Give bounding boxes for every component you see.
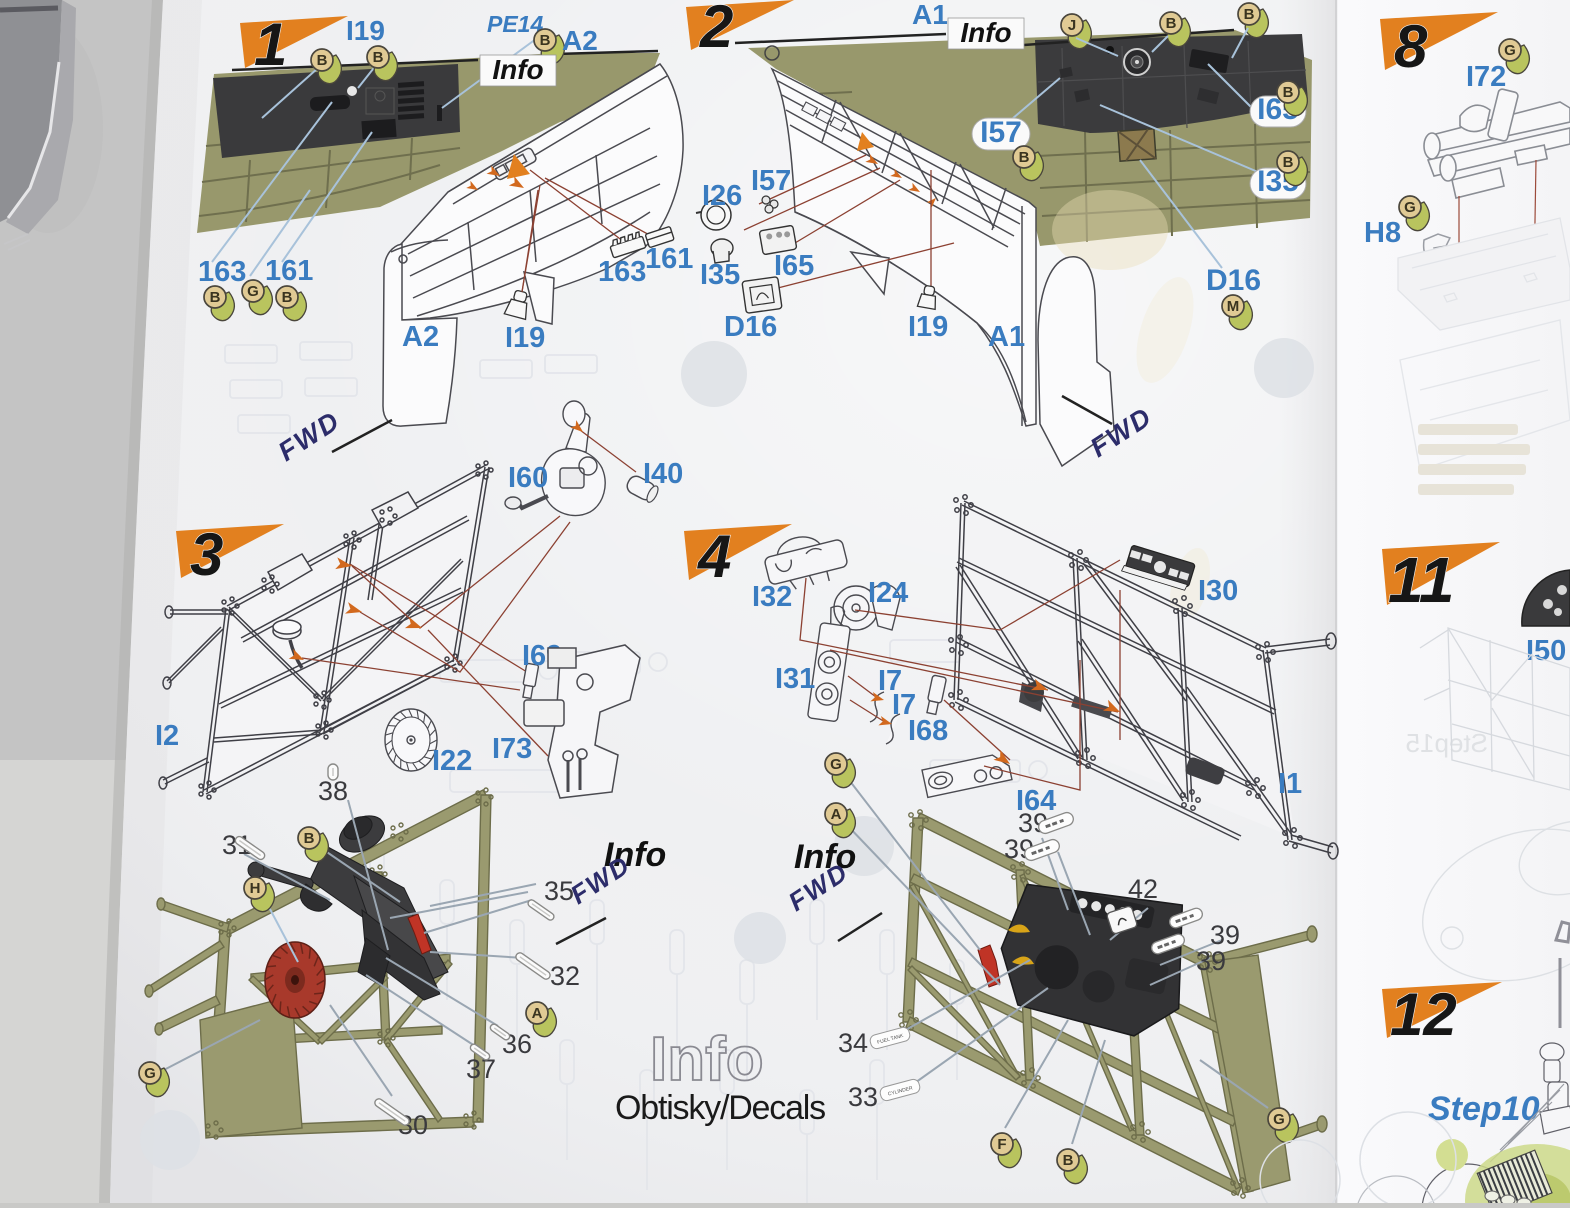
svg-text:I26: I26 [702, 180, 742, 212]
svg-text:G: G [247, 283, 259, 300]
svg-text:M: M [1227, 298, 1240, 315]
svg-text:I65: I65 [774, 250, 814, 282]
svg-text:4: 4 [697, 523, 731, 590]
svg-text:33: 33 [848, 1082, 878, 1112]
svg-text:B: B [373, 49, 384, 66]
svg-text:I40: I40 [643, 458, 683, 490]
svg-text:I32: I32 [752, 581, 792, 613]
svg-text:G: G [1504, 42, 1516, 59]
svg-text:1: 1 [254, 11, 287, 78]
svg-text:I19: I19 [505, 322, 545, 354]
svg-text:B: B [540, 32, 551, 49]
svg-text:I35: I35 [700, 259, 740, 291]
svg-text:H: H [250, 880, 261, 897]
svg-text:Info: Info [650, 1025, 764, 1094]
svg-text:B: B [1019, 149, 1030, 166]
svg-text:D16: D16 [724, 311, 777, 343]
svg-text:B: B [1283, 154, 1294, 171]
svg-text:32: 32 [550, 961, 580, 991]
svg-text:B: B [1283, 84, 1294, 101]
svg-text:Step15: Step15 [1406, 728, 1488, 758]
svg-text:I19: I19 [908, 311, 948, 343]
svg-text:A1: A1 [988, 321, 1025, 353]
svg-text:I57: I57 [751, 165, 791, 197]
svg-text:163: 163 [198, 256, 246, 288]
svg-text:Info: Info [960, 17, 1011, 48]
svg-text:I19: I19 [346, 15, 385, 46]
svg-text:I30: I30 [1198, 575, 1238, 607]
svg-text:H8: H8 [1364, 217, 1401, 249]
svg-text:I2: I2 [155, 720, 179, 752]
svg-text:34: 34 [838, 1028, 868, 1058]
svg-text:161: 161 [645, 243, 693, 275]
svg-text:I1: I1 [1278, 768, 1302, 800]
svg-text:G: G [1404, 199, 1416, 216]
svg-text:11: 11 [1388, 544, 1454, 616]
svg-text:B: B [1166, 15, 1177, 32]
svg-text:Obtisky/Decals: Obtisky/Decals [615, 1089, 825, 1127]
svg-text:42: 42 [1128, 874, 1158, 904]
svg-text:I60: I60 [508, 462, 548, 494]
svg-text:37: 37 [466, 1054, 496, 1084]
svg-text:A1: A1 [912, 0, 948, 30]
svg-text:2: 2 [699, 0, 733, 60]
svg-text:F: F [997, 1136, 1006, 1153]
svg-text:Info: Info [492, 54, 543, 85]
svg-text:A: A [532, 1005, 543, 1022]
svg-text:I24: I24 [868, 577, 908, 609]
svg-text:I22: I22 [432, 745, 472, 777]
svg-text:8: 8 [1394, 13, 1428, 80]
svg-text:B: B [317, 52, 328, 69]
svg-text:A2: A2 [562, 25, 598, 56]
svg-text:D16: D16 [1206, 264, 1261, 297]
svg-text:PE14: PE14 [487, 11, 543, 37]
svg-text:G: G [1273, 1111, 1285, 1128]
svg-text:J: J [1068, 17, 1076, 34]
svg-text:B: B [304, 830, 315, 847]
svg-text:B: B [210, 289, 221, 306]
svg-text:163: 163 [598, 256, 646, 288]
svg-text:I68: I68 [908, 715, 948, 747]
svg-text:I73: I73 [492, 733, 532, 765]
svg-text:161: 161 [265, 255, 313, 287]
svg-text:39: 39 [1196, 946, 1226, 976]
svg-text:G: G [830, 756, 842, 773]
svg-text:B: B [1063, 1152, 1074, 1169]
svg-text:3: 3 [190, 521, 223, 588]
svg-text:I72: I72 [1466, 61, 1506, 93]
svg-text:B: B [1244, 6, 1255, 23]
svg-text:12: 12 [1390, 981, 1457, 1048]
svg-text:Step10: Step10 [1428, 1090, 1540, 1128]
svg-text:A2: A2 [402, 321, 439, 353]
svg-text:I31: I31 [775, 663, 815, 695]
svg-text:G: G [144, 1065, 156, 1082]
svg-text:A: A [831, 806, 842, 823]
svg-text:B: B [282, 289, 293, 306]
svg-text:I57: I57 [980, 116, 1022, 149]
